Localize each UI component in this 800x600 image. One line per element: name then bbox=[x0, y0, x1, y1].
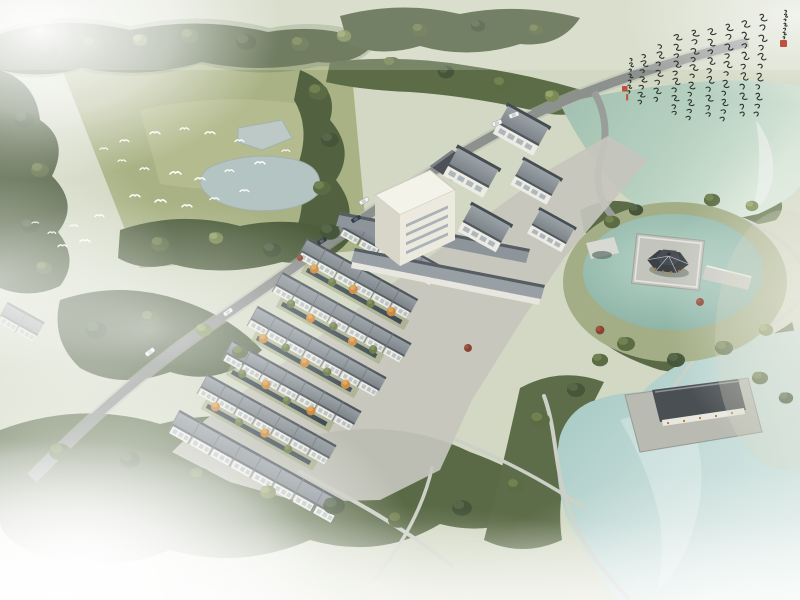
tree bbox=[507, 479, 525, 493]
tree bbox=[308, 84, 328, 99]
top-fade bbox=[0, 0, 800, 70]
red-shrub bbox=[464, 344, 472, 352]
tree bbox=[567, 383, 585, 397]
tree bbox=[592, 354, 608, 367]
tree bbox=[493, 77, 511, 91]
tree bbox=[313, 181, 331, 195]
aerial-rendering bbox=[0, 0, 800, 600]
tree bbox=[530, 412, 550, 427]
bottom-fade bbox=[0, 520, 800, 600]
tree bbox=[604, 216, 620, 229]
bridge-arch-shadow bbox=[592, 251, 612, 259]
red-seal-mark bbox=[626, 94, 628, 101]
rendering-image bbox=[0, 0, 800, 600]
tree bbox=[321, 133, 339, 147]
tree bbox=[617, 337, 635, 351]
tree bbox=[629, 204, 643, 215]
red-shrub bbox=[596, 326, 605, 335]
tree bbox=[545, 90, 559, 102]
red-seal bbox=[780, 40, 787, 47]
red-seal bbox=[622, 86, 628, 92]
